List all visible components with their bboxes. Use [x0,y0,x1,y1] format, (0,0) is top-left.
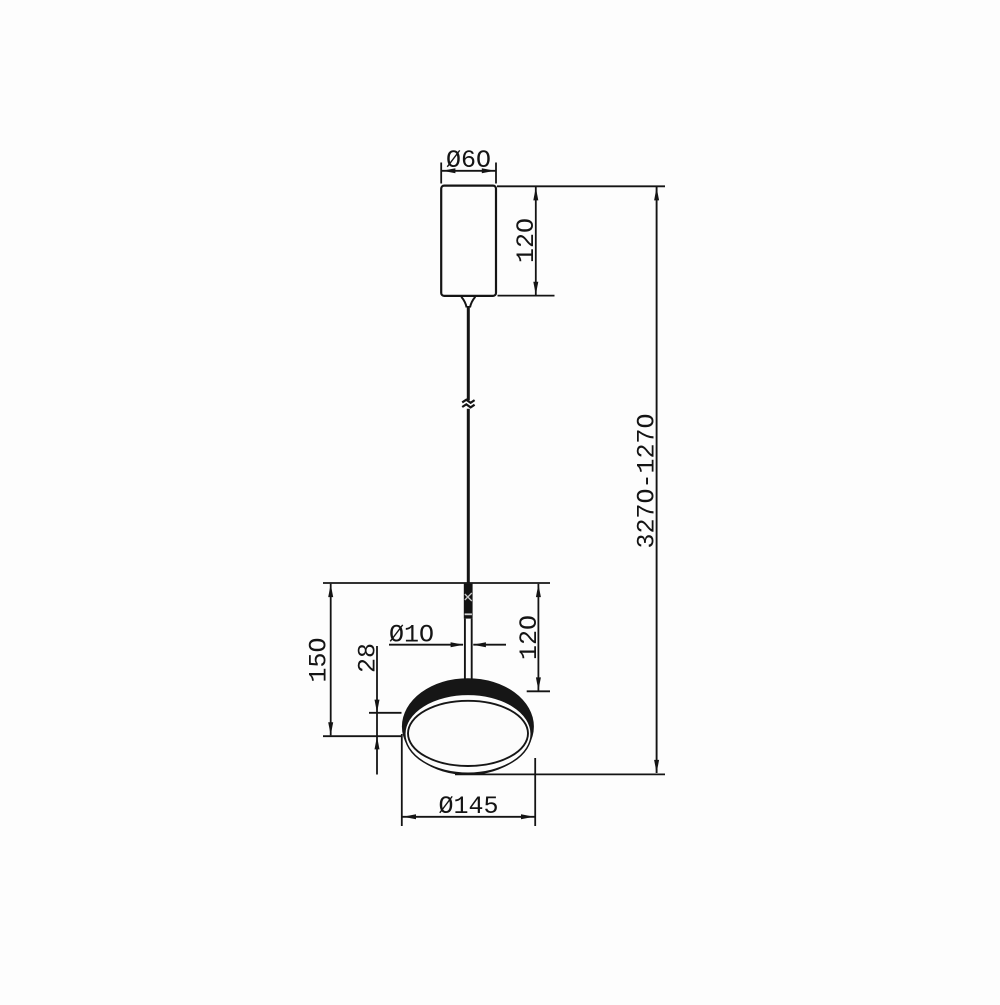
svg-text:Ø145: Ø145 [438,792,498,821]
svg-text:12O: 12O [512,218,541,263]
svg-text:12O: 12O [515,615,544,660]
svg-text:Ø6O: Ø6O [446,146,491,175]
svg-text:327O-127O: 327O-127O [633,413,662,548]
svg-text:28: 28 [354,643,383,673]
svg-text:15O: 15O [305,637,334,682]
svg-text:Ø1O: Ø1O [389,621,434,650]
